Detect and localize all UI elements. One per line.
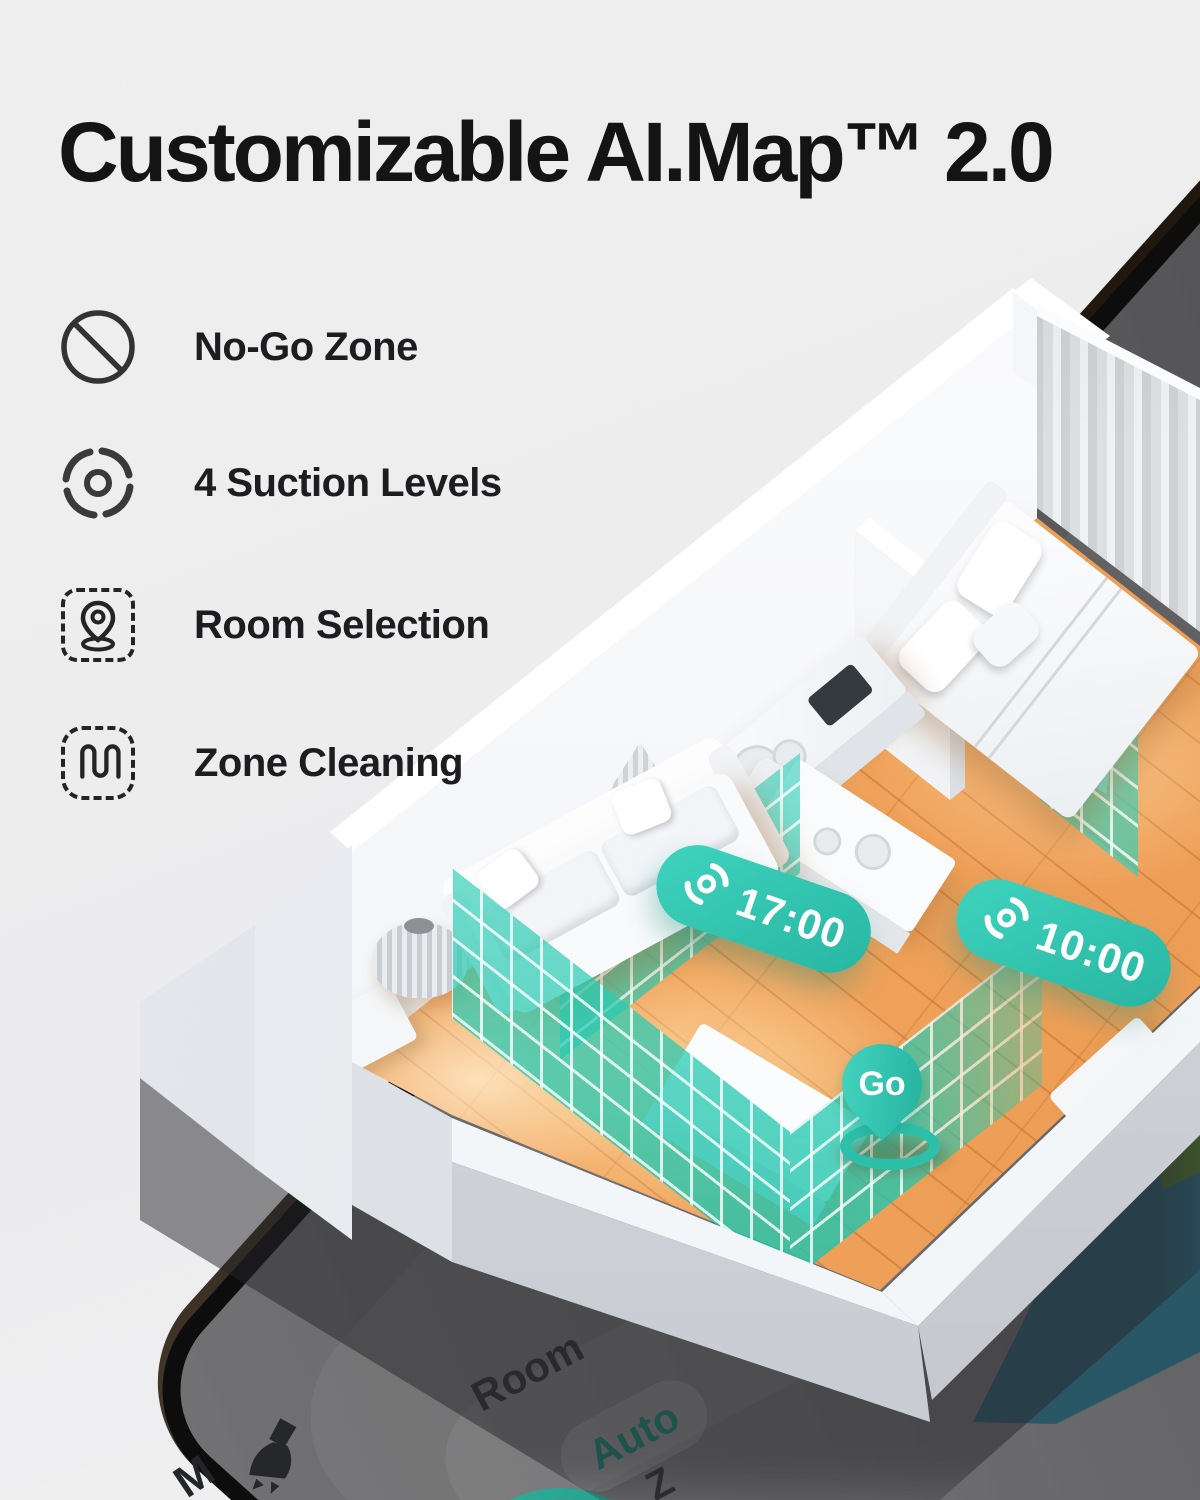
feature-label: No-Go Zone bbox=[194, 325, 418, 370]
feature-suction-levels: 4 Suction Levels bbox=[58, 440, 502, 526]
go-pin-label: Go bbox=[858, 1065, 905, 1104]
marketing-graphic: Room Auto Z M bbox=[0, 0, 1200, 1500]
clean-mode-brush-icon bbox=[224, 1404, 328, 1500]
feature-label: 4 Suction Levels bbox=[194, 461, 502, 506]
suction-swirl-icon bbox=[674, 855, 736, 923]
suction-swirl-icon bbox=[974, 889, 1036, 957]
schedule-time: 17:00 bbox=[730, 877, 852, 959]
bowl bbox=[848, 827, 898, 877]
schedule-time: 10:00 bbox=[1030, 911, 1152, 993]
feature-no-go-zone: No-Go Zone bbox=[58, 304, 418, 390]
no-go-zone-icon bbox=[58, 307, 138, 387]
suction-levels-icon bbox=[58, 443, 138, 523]
table-lamp-top bbox=[404, 918, 434, 934]
feature-label: Zone Cleaning bbox=[194, 741, 463, 786]
feature-room-selection: Room Selection bbox=[58, 582, 489, 668]
feature-label: Room Selection bbox=[194, 603, 489, 648]
page-title: Customizable AI.Map™ 2.0 bbox=[58, 104, 1178, 201]
cup bbox=[808, 822, 847, 861]
kitchen-sink bbox=[806, 663, 874, 728]
room-selection-icon bbox=[58, 585, 138, 665]
feature-zone-cleaning: Zone Cleaning bbox=[58, 720, 463, 806]
zone-cleaning-icon bbox=[58, 723, 138, 803]
